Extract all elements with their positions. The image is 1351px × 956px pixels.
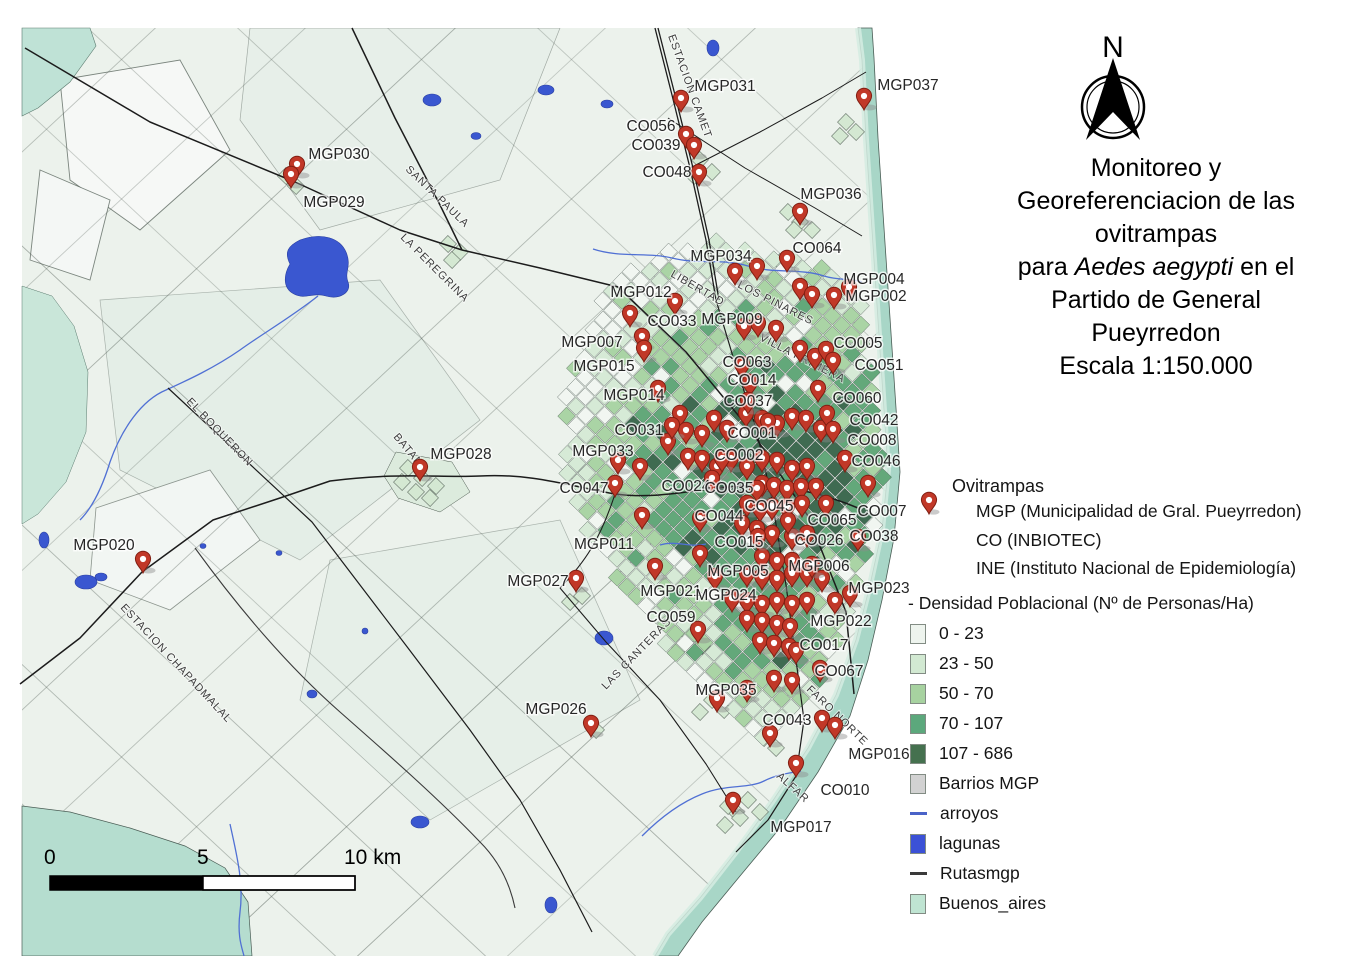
title-line: ovitrampas: [936, 218, 1351, 251]
legend-label: 0 - 23: [939, 623, 984, 644]
marker-label-CO042: CO042: [849, 412, 898, 429]
marker-label-CO035: CO035: [704, 480, 753, 497]
laguna: [307, 690, 317, 698]
laguna: [423, 94, 441, 106]
marker-label-CO039: CO039: [631, 137, 680, 154]
legend-label: Buenos_aires: [939, 893, 1046, 914]
title-line: Monitoreo y: [936, 152, 1351, 185]
marker-label-MGP020: MGP020: [73, 537, 135, 554]
marker-label-MGP036: MGP036: [800, 186, 861, 203]
marker-label-CO026: CO026: [794, 532, 843, 549]
legend-item-107-686: 107 - 686: [906, 739, 1351, 769]
marker-label-MGP033: MGP033: [572, 443, 633, 460]
marker-label-CO048: CO048: [642, 164, 691, 181]
legend-swatch: [910, 812, 927, 815]
legend-swatch: [910, 654, 926, 674]
marker-label-MGP035: MGP035: [695, 682, 756, 699]
marker-label-CO015: CO015: [714, 534, 763, 551]
marker-label-MGP005: MGP005: [707, 563, 768, 580]
scalebar-tick-5: 5: [197, 846, 209, 869]
marker-label-MGP030: MGP030: [308, 146, 370, 163]
title-species-italic: Aedes aegypti: [1075, 253, 1233, 281]
legend-item-Rutasmgp: Rutasmgp: [906, 859, 1351, 889]
title-line: Partido de General: [936, 284, 1351, 317]
marker-label-MGP026: MGP026: [525, 701, 586, 718]
legend-swatch: [910, 624, 926, 644]
marker-label-CO064: CO064: [792, 240, 841, 257]
legend-label: 70 - 107: [939, 713, 1003, 734]
marker-label-MGP007: MGP007: [561, 334, 622, 351]
marker-label-MGP037: MGP037: [877, 77, 938, 94]
marker-label-MGP015: MGP015: [573, 358, 634, 375]
legend-ovitrampas-header: Ovitrampas: [906, 476, 1351, 497]
marker-label-CO060: CO060: [832, 390, 881, 407]
laguna: [471, 133, 481, 140]
marker-label-CO067: CO067: [814, 663, 863, 680]
marker-label-CO063: CO063: [722, 354, 771, 371]
legend-label: lagunas: [939, 833, 1000, 854]
legend-source-ine: INE (Instituto Nacional de Epidemiología…: [976, 554, 1351, 583]
north-arrow: N: [1082, 31, 1144, 140]
marker-label-CO056: CO056: [626, 118, 675, 135]
legend-swatch: [910, 774, 926, 794]
legend-source-mgp: MGP (Municipalidad de Gral. Pueyrredon): [976, 497, 1351, 526]
marker-label-MGP006: MGP006: [788, 558, 849, 575]
marker-label-MGP012: MGP012: [610, 284, 671, 301]
legend-swatch: [910, 744, 926, 764]
title-scale: Escala 1:150.000: [936, 350, 1351, 383]
marker-label-MGP027: MGP027: [507, 573, 568, 590]
legend-label: Barrios MGP: [939, 773, 1039, 794]
laguna: [601, 100, 613, 108]
laguna: [707, 40, 719, 56]
legend-item-0-23: 0 - 23: [906, 619, 1351, 649]
title-line: para Aedes aegypti en el: [936, 251, 1351, 284]
marker-label-MGP014: MGP014: [603, 387, 665, 404]
legend: Ovitrampas MGP (Municipalidad de Gral. P…: [906, 476, 1351, 919]
legend-item-50-70: 50 - 70: [906, 679, 1351, 709]
laguna: [411, 816, 429, 828]
legend-label: 23 - 50: [939, 653, 993, 674]
marker-label-MGP004: MGP004: [843, 271, 905, 288]
legend-label: arroyos: [940, 803, 998, 824]
scalebar-segment-white: [203, 876, 355, 890]
legend-item-Buenos_aires: Buenos_aires: [906, 889, 1351, 919]
marker-label-MGP009: MGP009: [701, 311, 762, 328]
marker-label-MGP029: MGP029: [303, 194, 364, 211]
marker-label-CO033: CO033: [647, 313, 696, 330]
legend-source-co: CO (INBIOTEC): [976, 526, 1351, 555]
marker-label-MGP023: MGP023: [848, 580, 909, 597]
marker-label-MGP011: MGP011: [574, 536, 634, 553]
marker-label-CO007: CO007: [857, 503, 906, 520]
laguna: [362, 628, 368, 634]
marker-label-CO065: CO065: [807, 512, 856, 529]
legend-swatch: [910, 834, 926, 854]
title-line: Pueyrredon: [936, 317, 1351, 350]
marker-label-CO001: CO001: [727, 425, 776, 442]
legend-swatch: [910, 714, 926, 734]
marker-label-MGP017: MGP017: [770, 819, 831, 836]
marker-label-CO047: CO047: [559, 480, 608, 497]
legend-label: Rutasmgp: [940, 863, 1020, 884]
marker-label-MGP034: MGP034: [690, 248, 752, 265]
scalebar-tick-10: 10 km: [344, 846, 401, 869]
laguna: [285, 236, 349, 297]
legend-item-lagunas: lagunas: [906, 829, 1351, 859]
legend-swatch: [910, 894, 926, 914]
legend-sources: MGP (Municipalidad de Gral. Pueyrredon) …: [906, 497, 1351, 583]
marker-label-MGP002: MGP002: [845, 288, 906, 305]
legend-swatch: [910, 872, 927, 875]
marker-label-CO059: CO059: [646, 609, 695, 626]
marker-label-MGP021: MGP021: [640, 583, 701, 600]
marker-label-CO010: CO010: [820, 782, 869, 799]
marker-label-CO017: CO017: [799, 637, 848, 654]
legend-ovitrampas-title: Ovitrampas: [952, 476, 1044, 496]
marker-label-CO046: CO046: [851, 453, 900, 470]
legend-swatch: [910, 684, 926, 704]
legend-item-BarriosMGP: Barrios MGP: [906, 769, 1351, 799]
ovitrampa-pin-icon: [918, 488, 940, 518]
marker-label-CO037: CO037: [723, 393, 772, 410]
legend-density-title: - Densidad Poblacional (Nº de Personas/H…: [908, 593, 1351, 614]
marker-label-CO045: CO045: [744, 498, 793, 515]
laguna: [39, 532, 49, 548]
marker-label-CO008: CO008: [847, 432, 896, 449]
marker-label-CO014: CO014: [727, 372, 776, 389]
marker-label-CO043: CO043: [762, 712, 811, 729]
marker-label-CO044: CO044: [694, 508, 743, 525]
scalebar-tick-0: 0: [44, 846, 56, 869]
laguna: [276, 551, 282, 556]
legend-label: 107 - 686: [939, 743, 1013, 764]
laguna: [200, 544, 206, 549]
title-line: Georeferenciacion de las: [936, 185, 1351, 218]
laguna: [538, 85, 554, 95]
marker-label-CO002: CO002: [714, 447, 763, 464]
laguna: [545, 897, 557, 913]
marker-label-CO031: CO031: [614, 422, 663, 439]
laguna: [95, 573, 107, 581]
marker-label-CO051: CO051: [854, 357, 903, 374]
legend-rows: 0 - 2323 - 5050 - 7070 - 107107 - 686Bar…: [906, 619, 1351, 919]
legend-item-23-50: 23 - 50: [906, 649, 1351, 679]
legend-item-arroyos: arroyos: [906, 799, 1351, 829]
marker-label-MGP022: MGP022: [810, 613, 871, 630]
marker-label-MGP024: MGP024: [695, 587, 757, 604]
marker-label-CO005: CO005: [833, 335, 882, 352]
legend-item-70-107: 70 - 107: [906, 709, 1351, 739]
scalebar-segment-black: [50, 876, 203, 890]
marker-label-MGP016: MGP016: [848, 746, 909, 763]
map-title: Monitoreo y Georeferenciacion de las ovi…: [936, 152, 1351, 383]
north-arrow-glyph: [1086, 58, 1140, 140]
marker-label-MGP028: MGP028: [430, 446, 491, 463]
marker-label-MGP031: MGP031: [694, 78, 755, 95]
laguna: [75, 575, 97, 589]
marker-label-CO038: CO038: [849, 528, 898, 545]
legend-label: 50 - 70: [939, 683, 993, 704]
